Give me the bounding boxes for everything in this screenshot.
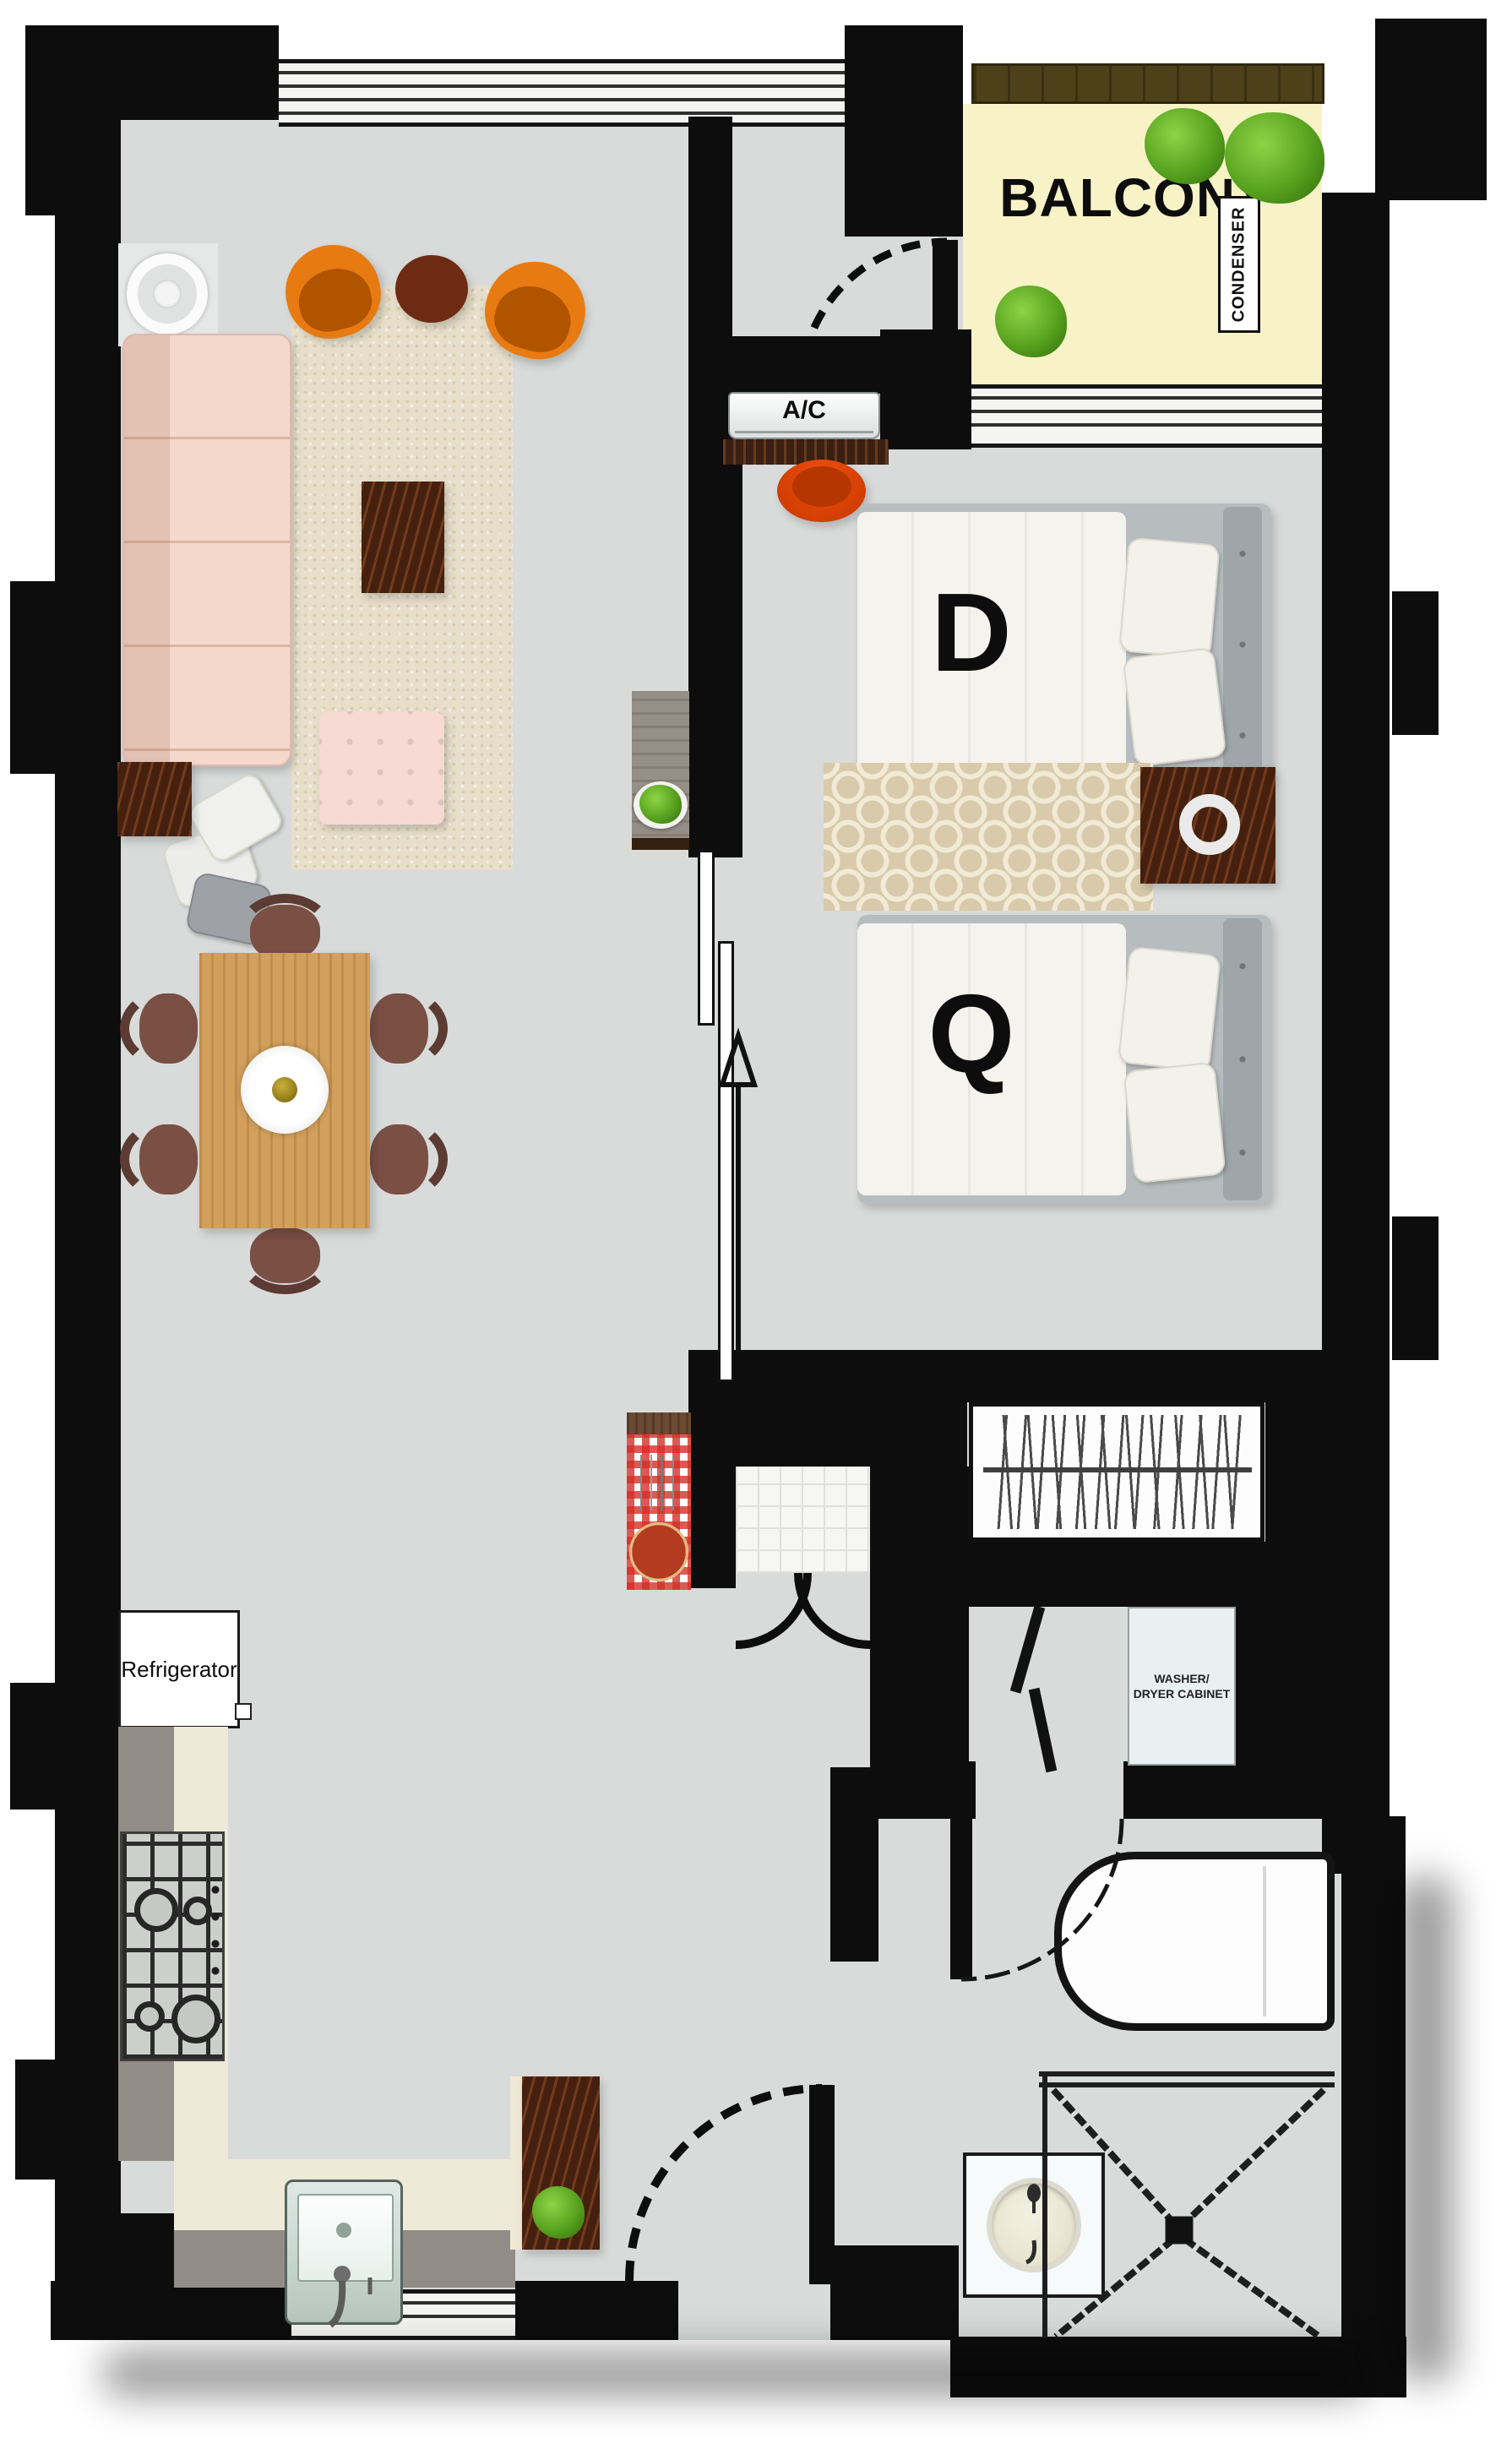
sink-basin [297, 2194, 394, 2282]
stove-knobs [210, 1876, 220, 1986]
wall [1236, 1607, 1322, 1767]
ac-vent [735, 431, 873, 433]
dining-chair [128, 980, 209, 1077]
ottoman [319, 711, 444, 824]
washer-label: WASHER/ [1154, 1672, 1209, 1685]
wall [51, 2281, 291, 2340]
table-lamp-core [153, 280, 182, 308]
window [963, 384, 1322, 448]
floor-plan: BALCONY CONDENSER [0, 0, 1512, 2449]
bed-pillow [1122, 647, 1226, 767]
headboard [1223, 918, 1262, 1200]
wall [878, 1761, 976, 1819]
wall-pier [1375, 19, 1487, 200]
balcony-door-leaf [933, 240, 958, 389]
sliding-door-panel [718, 941, 734, 1382]
wall-pier [15, 2060, 56, 2180]
wall [55, 108, 121, 2298]
burner [134, 1888, 178, 1932]
vanity-basin [987, 2178, 1081, 2272]
stove [120, 1831, 225, 2061]
centerpiece-gold-center [272, 1077, 297, 1102]
balcony-planter [971, 63, 1324, 104]
burner [183, 1897, 212, 1925]
wall [845, 25, 963, 237]
wall-pier [10, 1683, 57, 1810]
cutlery-icon [635, 1455, 683, 1510]
checkered-counter-cap [627, 1412, 691, 1434]
burner [134, 2001, 165, 2032]
bed-pillow [1118, 946, 1221, 1073]
wall [830, 1767, 878, 1962]
bathtub-deck-line [1263, 1866, 1266, 2016]
sofa [122, 334, 291, 766]
bed-label-q: Q [895, 961, 1047, 1105]
sink [285, 2180, 403, 2325]
wall-shadow [101, 2350, 1368, 2397]
wall-shadow [1395, 1875, 1455, 2382]
wall [1322, 193, 1390, 1874]
ac-unit: A/C [728, 392, 880, 439]
bathtub [1054, 1852, 1335, 2031]
condenser-box: CONDENSER [1218, 196, 1260, 333]
window [279, 59, 845, 127]
washer-label: DRYER CABINET [1134, 1687, 1231, 1701]
wall [688, 1350, 736, 1588]
dining-chair [359, 980, 439, 1077]
coffee-table [362, 482, 444, 593]
trellis-rug [824, 763, 1153, 911]
closet [969, 1402, 1265, 1542]
wall-pier [10, 581, 57, 774]
wall [830, 2245, 959, 2340]
hanger-rod [983, 1467, 1252, 1472]
bed-pillow [1123, 1062, 1226, 1184]
nightstand-lamp-icon [1179, 794, 1240, 855]
bed-label-d: D [895, 564, 1047, 699]
wall-pier [1392, 591, 1439, 735]
plant-icon [639, 785, 682, 824]
bathroom-door-leaf [950, 1819, 972, 1979]
ac-label: A/C [730, 394, 878, 428]
bottom-console-edge [510, 2076, 522, 2250]
wall [1265, 1398, 1324, 1550]
dining-chair [359, 1111, 439, 1208]
burner [171, 1995, 220, 2044]
wall [515, 2281, 678, 2340]
sliding-door-panel [698, 850, 715, 1026]
wall-pier [1392, 1216, 1439, 1360]
refrigerator-label: Refrigerator [121, 1613, 237, 1726]
wall [870, 1467, 969, 1771]
desk-chair-seat [792, 466, 851, 507]
console-table-edge [632, 838, 689, 850]
dining-chair [128, 1111, 209, 1208]
side-table [117, 762, 192, 836]
refrigerator-hinge [235, 1703, 252, 1720]
headboard [1223, 507, 1262, 782]
bed-pillow [1118, 537, 1220, 660]
pizza-icon [629, 1522, 688, 1581]
wall [929, 1542, 1322, 1607]
wall [1123, 1761, 1343, 1819]
washer-dryer-cabinet: WASHER/ DRYER CABINET [1128, 1607, 1236, 1766]
foyer-tile [736, 1467, 870, 1573]
entry-door-leaf [809, 2085, 835, 2284]
plant-icon [532, 2186, 585, 2239]
condenser-label: CONDENSER [1230, 207, 1249, 323]
divider-wall [688, 336, 884, 394]
refrigerator: Refrigerator [118, 1610, 240, 1728]
divider-wall [688, 117, 732, 343]
round-side-table [395, 255, 468, 323]
